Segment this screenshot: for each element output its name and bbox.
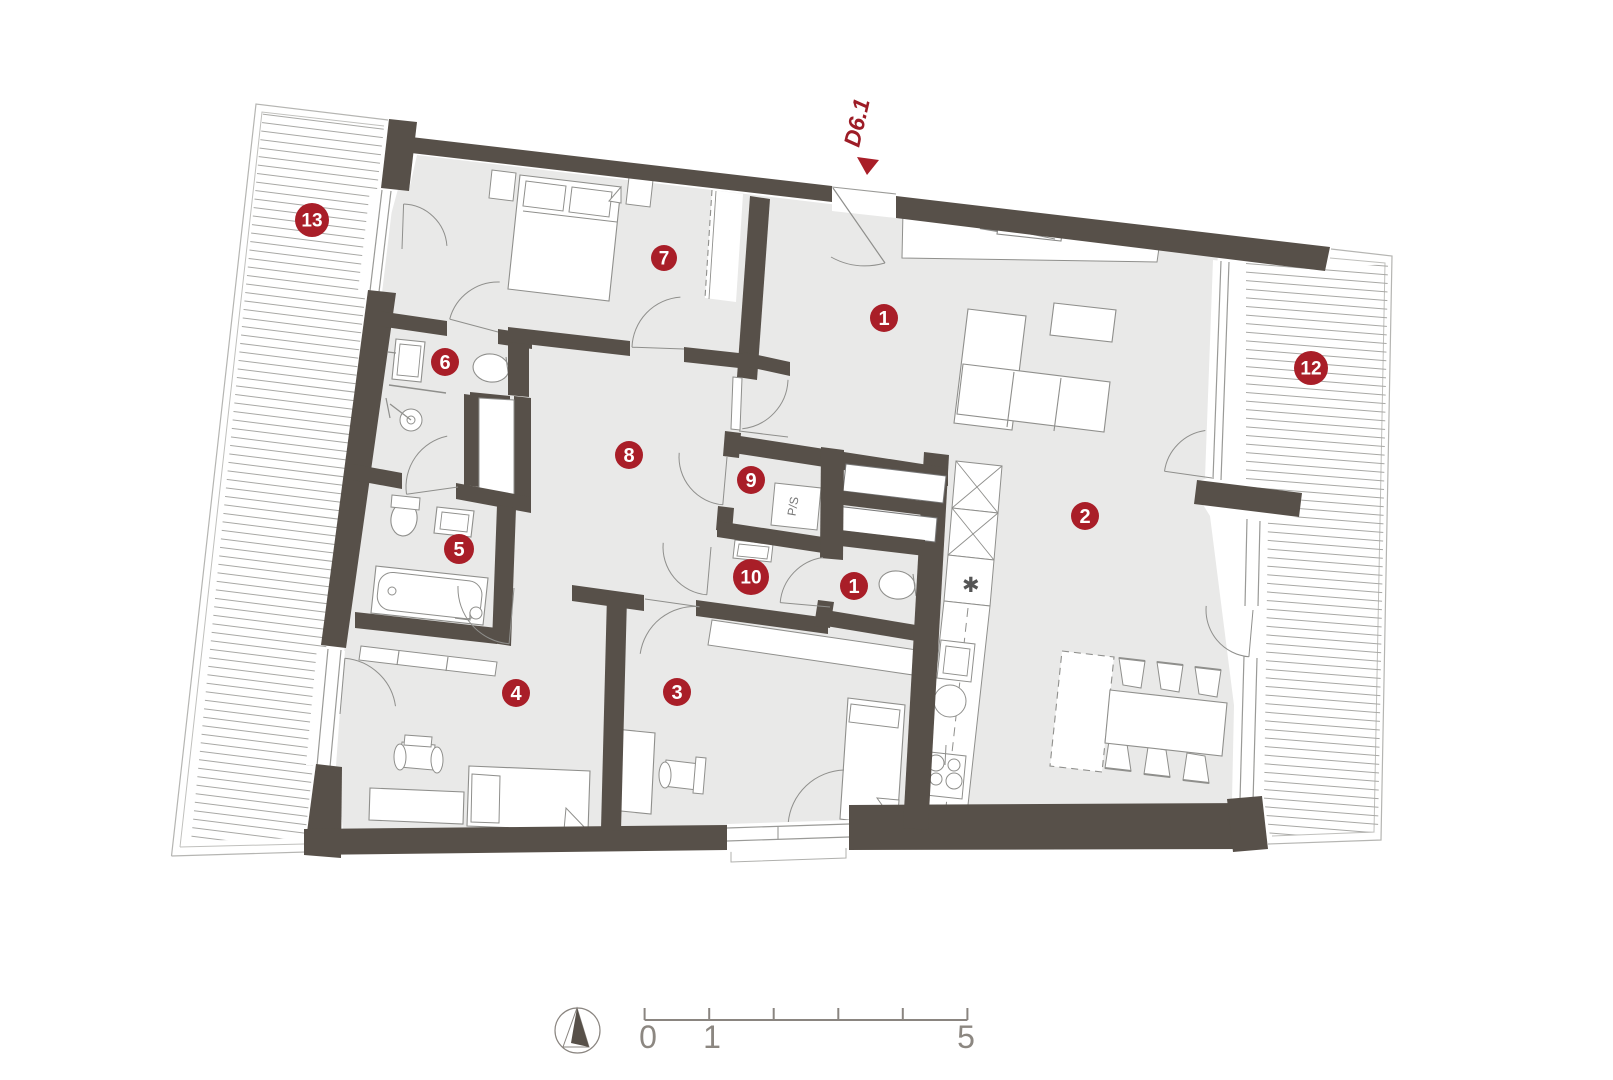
svg-text:3: 3	[671, 682, 682, 704]
svg-text:7: 7	[659, 249, 670, 270]
svg-text:8: 8	[623, 445, 634, 467]
svg-text:13: 13	[301, 211, 322, 232]
svg-text:5: 5	[453, 539, 464, 561]
svg-text:1: 1	[878, 308, 889, 330]
svg-text:6: 6	[439, 352, 450, 374]
svg-text:0: 0	[639, 1019, 657, 1055]
svg-text:12: 12	[1300, 359, 1321, 380]
svg-text:2: 2	[1079, 506, 1090, 528]
svg-text:4: 4	[510, 683, 522, 705]
svg-text:5: 5	[957, 1019, 975, 1055]
svg-text:10: 10	[740, 568, 761, 589]
svg-text:1: 1	[703, 1019, 721, 1055]
svg-text:9: 9	[745, 470, 756, 492]
svg-text:✱: ✱	[962, 574, 980, 597]
svg-text:1: 1	[848, 576, 859, 598]
